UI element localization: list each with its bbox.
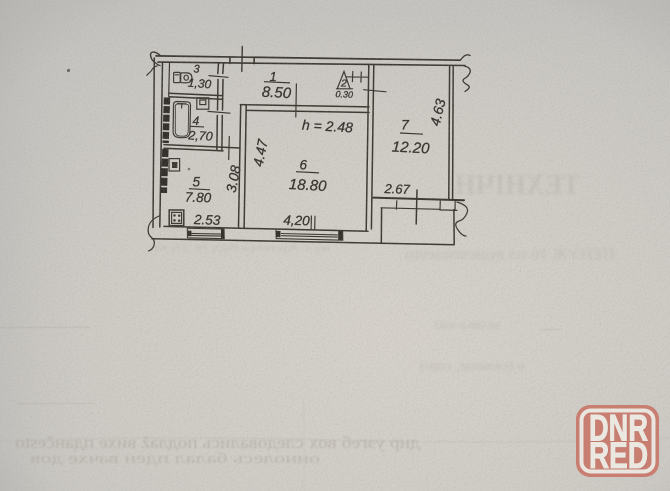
svg-text:RED: RED — [589, 434, 648, 476]
